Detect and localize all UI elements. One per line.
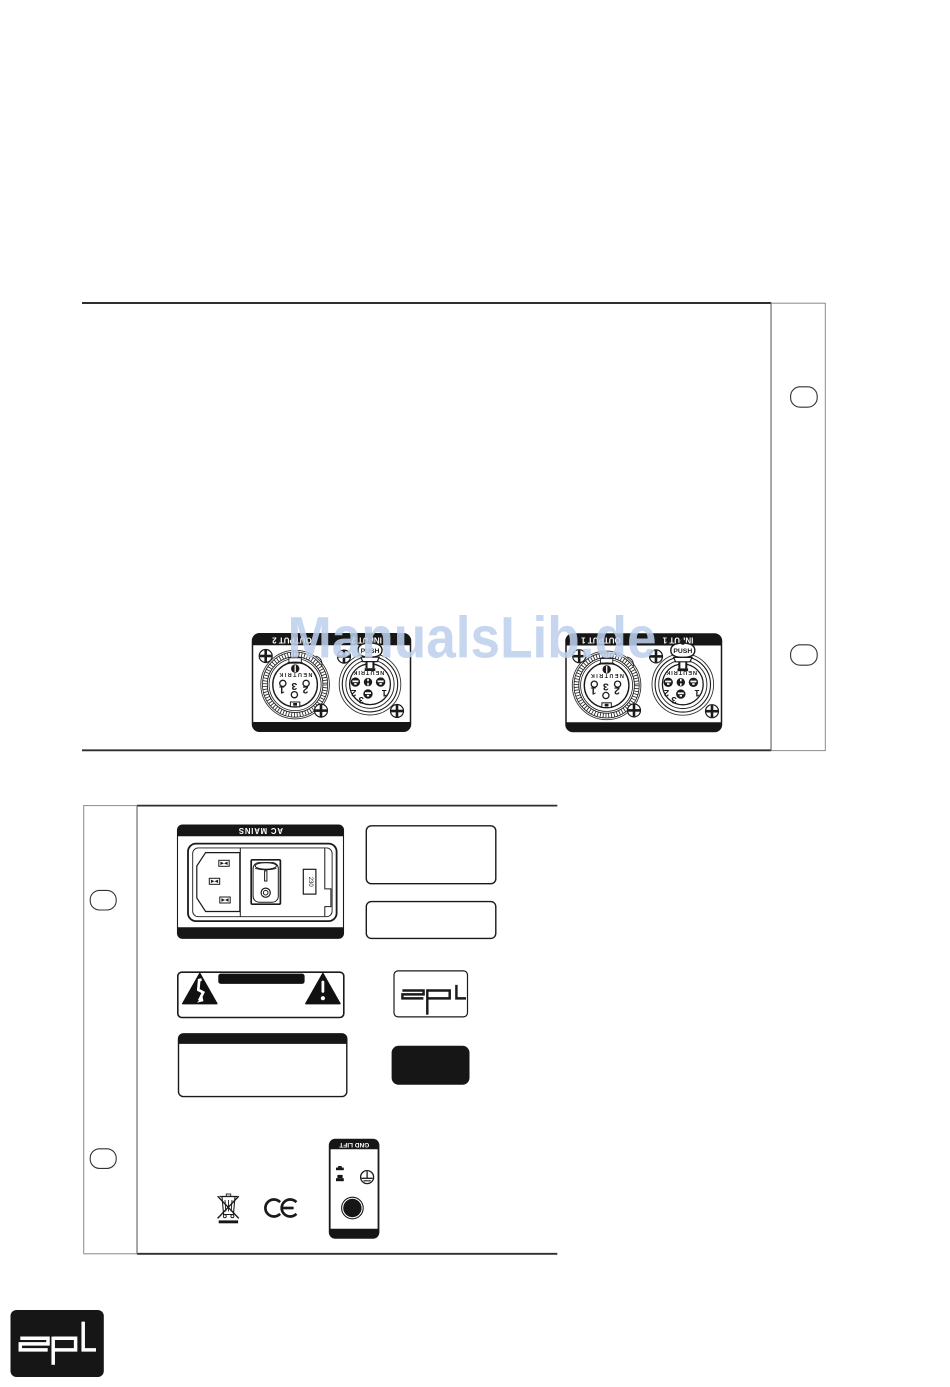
svg-text:GND LIFT: GND LIFT xyxy=(339,1141,369,1148)
svg-text:ManualsLib.de: ManualsLib.de xyxy=(288,606,657,671)
svg-text:AC MAINS: AC MAINS xyxy=(238,826,283,835)
svg-text:230: 230 xyxy=(307,877,313,888)
